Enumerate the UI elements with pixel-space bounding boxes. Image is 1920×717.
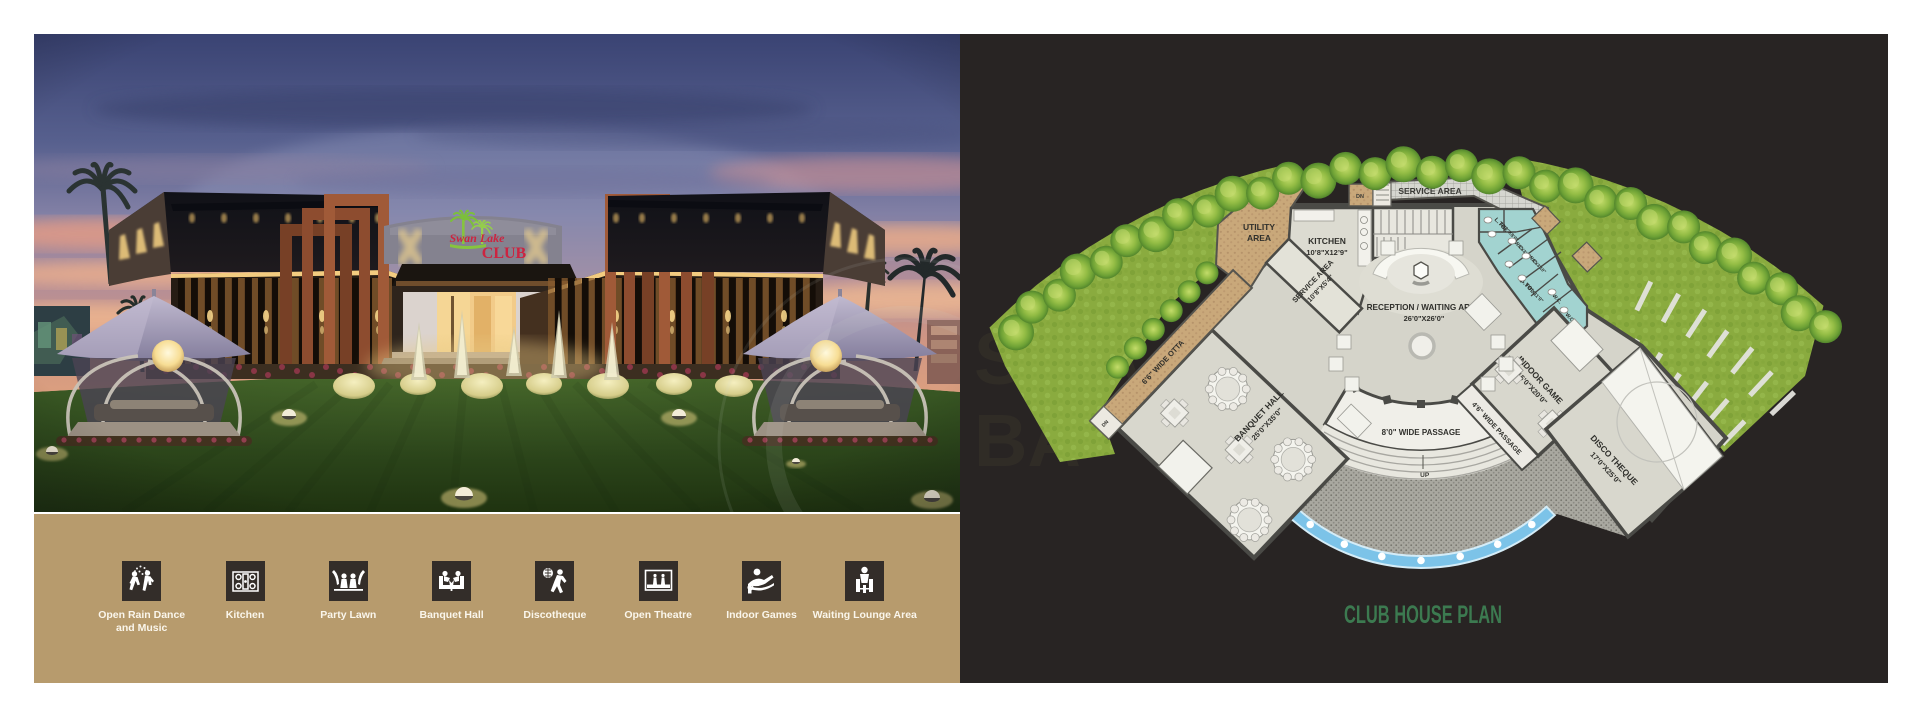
svg-text:8’0" WIDE PASSAGE: 8’0" WIDE PASSAGE	[1382, 428, 1461, 437]
svg-text:AREA: AREA	[1247, 233, 1271, 243]
svg-text:UP: UP	[1420, 472, 1430, 479]
svg-text:KITCHEN: KITCHEN	[1308, 236, 1346, 246]
svg-text:RECEPTION / WAITING AREA: RECEPTION / WAITING AREA	[1367, 303, 1482, 312]
svg-text:10’8"X12’9": 10’8"X12’9"	[1306, 248, 1348, 257]
svg-text:26’0"X26’0": 26’0"X26’0"	[1404, 314, 1445, 323]
svg-text:UTILITY: UTILITY	[1243, 222, 1275, 232]
svg-text:DN: DN	[1356, 194, 1364, 200]
svg-text:CLUB HOUSE PLAN: CLUB HOUSE PLAN	[1344, 601, 1502, 629]
